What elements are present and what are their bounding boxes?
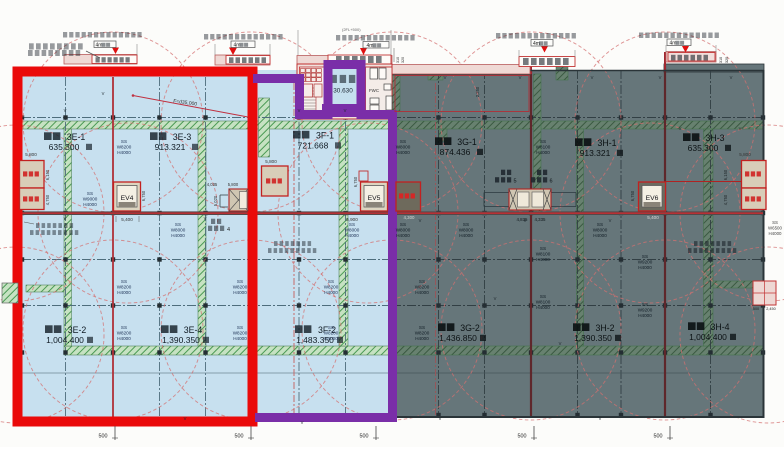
svg-text:EV6: EV6: [646, 195, 659, 202]
svg-text:H4000: H4000: [536, 305, 550, 310]
svg-text:4: 4: [227, 227, 230, 233]
svg-text:V: V: [739, 126, 742, 131]
svg-text:5,900: 5,900: [346, 217, 358, 222]
svg-text:3G-1: 3G-1: [457, 137, 477, 147]
svg-text:H4000: H4000: [593, 233, 607, 238]
svg-text:721.668: 721.668: [298, 141, 329, 151]
svg-text:H4000: H4000: [117, 150, 131, 155]
svg-text:SS: SS: [642, 254, 648, 259]
svg-text:W8100: W8100: [536, 252, 551, 257]
svg-text:SS: SS: [772, 220, 778, 225]
svg-text:5,400: 5,400: [647, 215, 659, 220]
svg-text:W8000: W8000: [593, 228, 608, 233]
svg-text:W8200: W8200: [117, 285, 132, 290]
svg-text:310: 310: [719, 57, 723, 63]
svg-text:SS: SS: [349, 222, 355, 227]
svg-text:SS: SS: [400, 139, 406, 144]
svg-text:W8200: W8200: [233, 331, 248, 336]
svg-text:SS: SS: [463, 222, 469, 227]
svg-text:W8000: W8000: [171, 228, 186, 233]
svg-text:H4000: H4000: [117, 290, 131, 295]
svg-text:(2FL+500): (2FL+500): [342, 27, 361, 32]
svg-text:V: V: [609, 218, 612, 223]
svg-text:W8200: W8200: [324, 285, 339, 290]
svg-text:SS: SS: [419, 279, 425, 284]
svg-text:320: 320: [401, 57, 405, 63]
svg-text:H4000: H4000: [171, 233, 185, 238]
svg-text:874.436: 874.436: [440, 147, 471, 157]
svg-text:H4000: H4000: [233, 290, 247, 295]
svg-text:3H-3: 3H-3: [705, 133, 724, 143]
svg-text:H4000: H4000: [638, 265, 652, 270]
svg-text:5,800: 5,800: [25, 152, 37, 157]
svg-text:4m: 4m: [670, 41, 677, 47]
svg-text:6: 6: [549, 179, 552, 185]
svg-text:H4000: H4000: [324, 290, 338, 295]
svg-text:635.300: 635.300: [688, 143, 719, 153]
svg-text:3E-2: 3E-2: [68, 325, 87, 335]
svg-text:4m: 4m: [96, 43, 103, 49]
svg-text:500: 500: [518, 434, 527, 440]
svg-text:SS: SS: [175, 222, 181, 227]
svg-text:SS: SS: [121, 325, 127, 330]
svg-text:SS: SS: [540, 294, 546, 299]
svg-text:W8100: W8100: [536, 300, 551, 305]
svg-text:4,335: 4,335: [535, 217, 547, 222]
svg-text:W8000: W8000: [396, 145, 411, 150]
svg-text:SS: SS: [642, 302, 648, 307]
svg-text:SS: SS: [121, 139, 127, 144]
svg-text:500: 500: [235, 434, 244, 440]
svg-text:635.300: 635.300: [49, 142, 80, 152]
svg-text:SS: SS: [87, 191, 93, 196]
svg-text:5: 5: [513, 179, 516, 185]
svg-text:V: V: [64, 108, 67, 113]
svg-text:H4000: H4000: [83, 202, 97, 207]
svg-text:W8200: W8200: [117, 331, 132, 336]
svg-text:V: V: [599, 416, 602, 421]
svg-text:W9200: W9200: [638, 308, 653, 313]
svg-text:6,150: 6,150: [45, 169, 50, 180]
svg-text:913.321: 913.321: [155, 142, 186, 152]
svg-text:V: V: [344, 108, 347, 113]
svg-text:V: V: [102, 91, 105, 96]
svg-text:V: V: [439, 416, 442, 421]
svg-text:4,035: 4,035: [207, 182, 218, 187]
svg-text:1,390.350: 1,390.350: [574, 333, 612, 343]
svg-text:4m: 4m: [367, 43, 374, 49]
svg-text:V: V: [494, 296, 497, 301]
svg-text:5,020: 5,020: [213, 195, 218, 206]
svg-text:V: V: [64, 216, 67, 221]
svg-text:H4000: H4000: [396, 233, 410, 238]
svg-text:W8000: W8000: [345, 228, 360, 233]
svg-text:5,400: 5,400: [121, 217, 133, 222]
svg-text:913.321: 913.321: [580, 148, 611, 158]
svg-text:H4000: H4000: [396, 150, 410, 155]
svg-text:SS: SS: [328, 279, 334, 284]
svg-text:SS: SS: [597, 222, 603, 227]
svg-text:V: V: [559, 341, 562, 346]
svg-text:SS: SS: [328, 325, 334, 330]
svg-text:H4000: H4000: [345, 233, 359, 238]
svg-text:6,750: 6,750: [141, 190, 146, 201]
svg-text:W8200: W8200: [233, 285, 248, 290]
svg-text:30.630: 30.630: [333, 88, 353, 95]
svg-text:W8200: W8200: [415, 331, 430, 336]
svg-text:4,300: 4,300: [404, 215, 416, 220]
svg-text:EV4: EV4: [121, 195, 134, 202]
svg-text:EV5: EV5: [368, 195, 381, 202]
svg-text:SS: SS: [419, 325, 425, 330]
svg-text:H4000: H4000: [233, 336, 247, 341]
svg-text:6,150: 6,150: [723, 169, 728, 180]
svg-text:3G-2: 3G-2: [460, 323, 480, 333]
svg-text:W8200: W8200: [324, 331, 339, 336]
svg-text:W9200: W9200: [638, 260, 653, 265]
svg-text:V: V: [591, 75, 594, 80]
svg-text:3E-3: 3E-3: [173, 132, 192, 142]
svg-text:3E-1: 3E-1: [67, 132, 86, 142]
svg-text:W8000: W8000: [396, 228, 411, 233]
svg-text:SS: SS: [237, 279, 243, 284]
svg-text:V: V: [730, 75, 733, 80]
svg-text:FWC: FWC: [369, 88, 379, 93]
svg-text:W8000: W8000: [459, 228, 474, 233]
svg-text:SS: SS: [400, 222, 406, 227]
svg-text:500: 500: [99, 434, 108, 440]
svg-text:4m: 4m: [234, 43, 241, 49]
svg-text:3H-4: 3H-4: [710, 322, 729, 332]
svg-text:5,800: 5,800: [228, 182, 239, 187]
svg-text:V: V: [519, 75, 522, 80]
svg-text:2,250: 2,250: [475, 86, 480, 97]
svg-text:H4000: H4000: [459, 233, 473, 238]
svg-text:3H-1: 3H-1: [597, 138, 616, 148]
svg-text:W8100: W8100: [536, 145, 551, 150]
svg-text:H4000: H4000: [117, 336, 131, 341]
svg-text:6,750: 6,750: [353, 176, 358, 187]
svg-text:4m: 4m: [533, 41, 540, 47]
svg-text:1,004.400: 1,004.400: [46, 335, 84, 345]
svg-text:2,450: 2,450: [766, 307, 776, 311]
svg-text:V: V: [419, 218, 422, 223]
svg-text:W8200: W8200: [415, 285, 430, 290]
svg-text:V: V: [204, 216, 207, 221]
svg-text:H4000: H4000: [415, 336, 429, 341]
svg-text:V: V: [301, 420, 304, 425]
svg-text:V: V: [444, 75, 447, 80]
svg-text:1,004.400: 1,004.400: [689, 332, 727, 342]
svg-text:H4000: H4000: [415, 290, 429, 295]
svg-text:H4000: H4000: [536, 257, 550, 262]
svg-text:V: V: [679, 126, 682, 131]
svg-text:5,800: 5,800: [265, 159, 277, 164]
svg-text:V: V: [298, 108, 301, 113]
svg-text:SS: SS: [540, 246, 546, 251]
svg-text:H4000: H4000: [536, 150, 550, 155]
svg-text:1,390.350: 1,390.350: [162, 335, 200, 345]
svg-text:310: 310: [396, 57, 400, 63]
svg-text:H4000: H4000: [638, 313, 652, 318]
svg-text:1,436.850: 1,436.850: [439, 333, 477, 343]
svg-text:4,750: 4,750: [723, 194, 728, 205]
svg-text:W9000: W9000: [83, 197, 98, 202]
svg-text:H4000: H4000: [769, 231, 782, 236]
svg-text:3H-2: 3H-2: [595, 323, 614, 333]
svg-text:320: 320: [725, 57, 729, 63]
svg-text:W8200: W8200: [117, 145, 132, 150]
svg-text:W6500: W6500: [768, 226, 782, 231]
svg-text:SS: SS: [540, 139, 546, 144]
svg-text:4,750: 4,750: [45, 194, 50, 205]
svg-text:500: 500: [360, 434, 369, 440]
svg-text:6,750: 6,750: [630, 190, 635, 201]
svg-text:V: V: [659, 75, 662, 80]
svg-text:3F-1: 3F-1: [316, 131, 334, 141]
svg-text:SS: SS: [237, 325, 243, 330]
svg-text:SS: SS: [121, 279, 127, 284]
svg-text:500: 500: [753, 307, 759, 311]
svg-text:V: V: [184, 416, 187, 421]
svg-text:H4000: H4000: [324, 336, 338, 341]
svg-text:3E-4: 3E-4: [184, 325, 203, 335]
svg-text:5,800: 5,800: [739, 152, 751, 157]
svg-text:500: 500: [654, 434, 663, 440]
svg-text:V: V: [524, 218, 527, 223]
